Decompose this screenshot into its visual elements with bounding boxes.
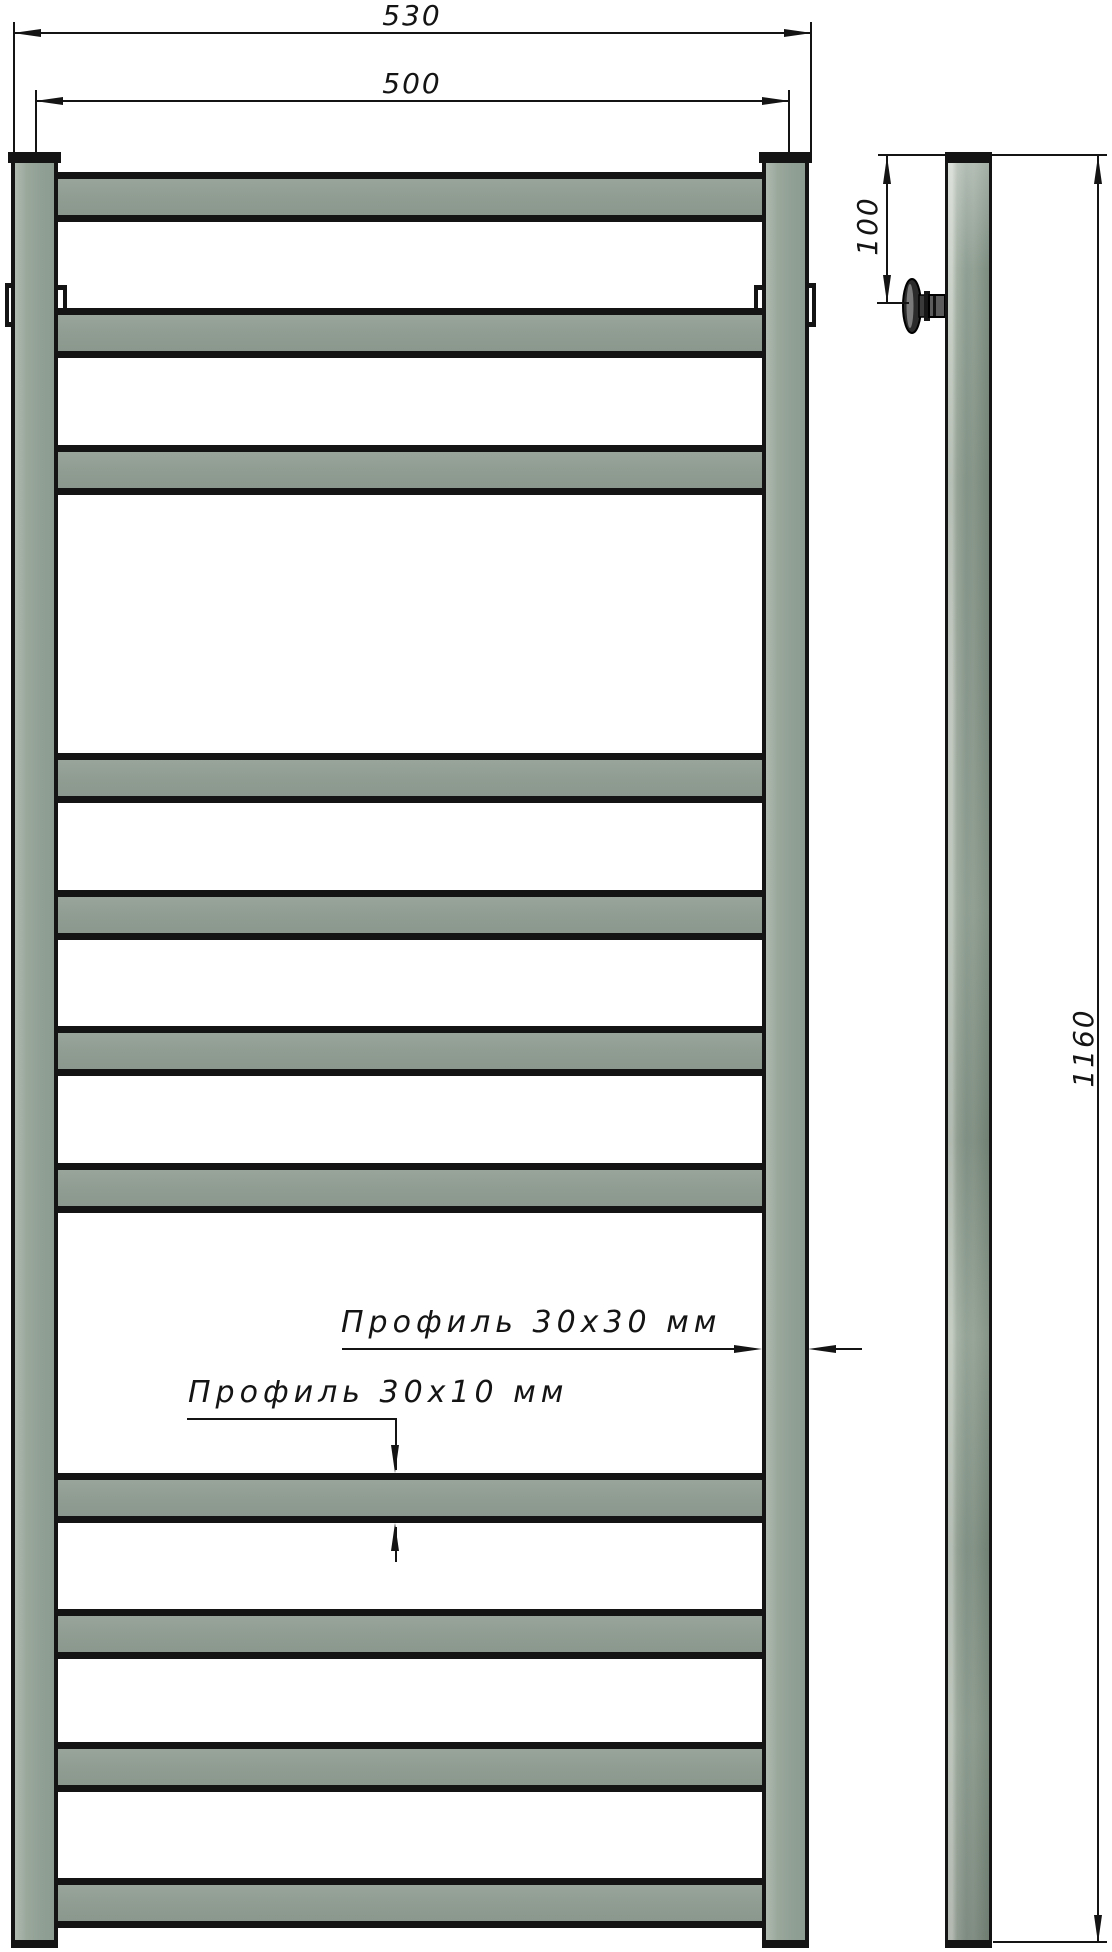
front-right-post <box>762 163 809 1940</box>
dimension-1160-arrow-down <box>1094 1915 1102 1943</box>
ladder-rung <box>58 753 762 803</box>
ladder-rung <box>58 1609 762 1659</box>
dimension-500-arrow-right <box>762 97 790 105</box>
wall-fastener-icon <box>895 274 945 338</box>
extension-line-top <box>878 154 1107 156</box>
extension-line <box>35 90 37 152</box>
dimension-500-arrow-left <box>35 97 63 105</box>
callout-rung-profile-tail <box>395 1527 397 1562</box>
dimension-530-arrow-right <box>784 29 812 37</box>
wall-bracket-right-outer <box>807 283 816 327</box>
dimension-500-label: 500 <box>382 70 441 98</box>
extension-line <box>13 22 15 152</box>
front-left-post <box>11 163 58 1940</box>
drawing-canvas: 530 500 Профиль 30х30 мм Профиль 30х <box>0 0 1112 1952</box>
callout-arrow-down <box>391 1445 399 1473</box>
front-left-post-foot <box>11 1940 58 1948</box>
front-right-post-foot <box>762 1940 809 1948</box>
wall-bracket-right-inner <box>754 285 763 309</box>
ladder-rung <box>58 1163 762 1213</box>
front-right-post-cap <box>759 152 812 163</box>
dimension-530-label: 530 <box>382 2 441 30</box>
ladder-rung <box>58 308 762 358</box>
callout-arrow-left <box>808 1345 836 1353</box>
callout-post-profile-label: Профиль 30х30 мм <box>341 1308 721 1338</box>
extension-line <box>810 22 812 152</box>
extension-line-bracket <box>877 302 909 304</box>
ladder-rung <box>58 890 762 940</box>
ladder-rung <box>58 445 762 495</box>
wall-bracket-left-outer <box>5 283 14 327</box>
dimension-100-arrow-up <box>883 156 891 184</box>
front-left-post-cap <box>8 152 61 163</box>
dimension-100-arrow-down <box>883 275 891 303</box>
callout-post-profile-tail <box>836 1348 862 1350</box>
extension-line <box>788 90 790 152</box>
callout-post-profile-leader <box>342 1348 738 1350</box>
dimension-1160-arrow-up <box>1094 156 1102 184</box>
ladder-rung <box>58 1026 762 1076</box>
callout-rung-profile-label: Профиль 30х10 мм <box>188 1378 568 1408</box>
ladder-rung <box>58 172 762 222</box>
dimension-100-label: 100 <box>854 196 882 255</box>
dimension-530-line <box>13 32 812 34</box>
dimension-500-line <box>35 100 790 102</box>
callout-rung-profile-leader <box>187 1418 397 1420</box>
ladder-rung <box>58 1878 762 1928</box>
side-profile-bar <box>945 152 992 1948</box>
dimension-1160-label: 1160 <box>1070 1008 1098 1087</box>
callout-arrow-right <box>734 1345 762 1353</box>
ladder-rung <box>58 1742 762 1792</box>
dimension-530-arrow-left <box>13 29 41 37</box>
ladder-rung <box>58 1473 762 1523</box>
extension-line-bottom <box>993 1941 1107 1943</box>
wall-bracket-left-inner <box>58 285 67 309</box>
